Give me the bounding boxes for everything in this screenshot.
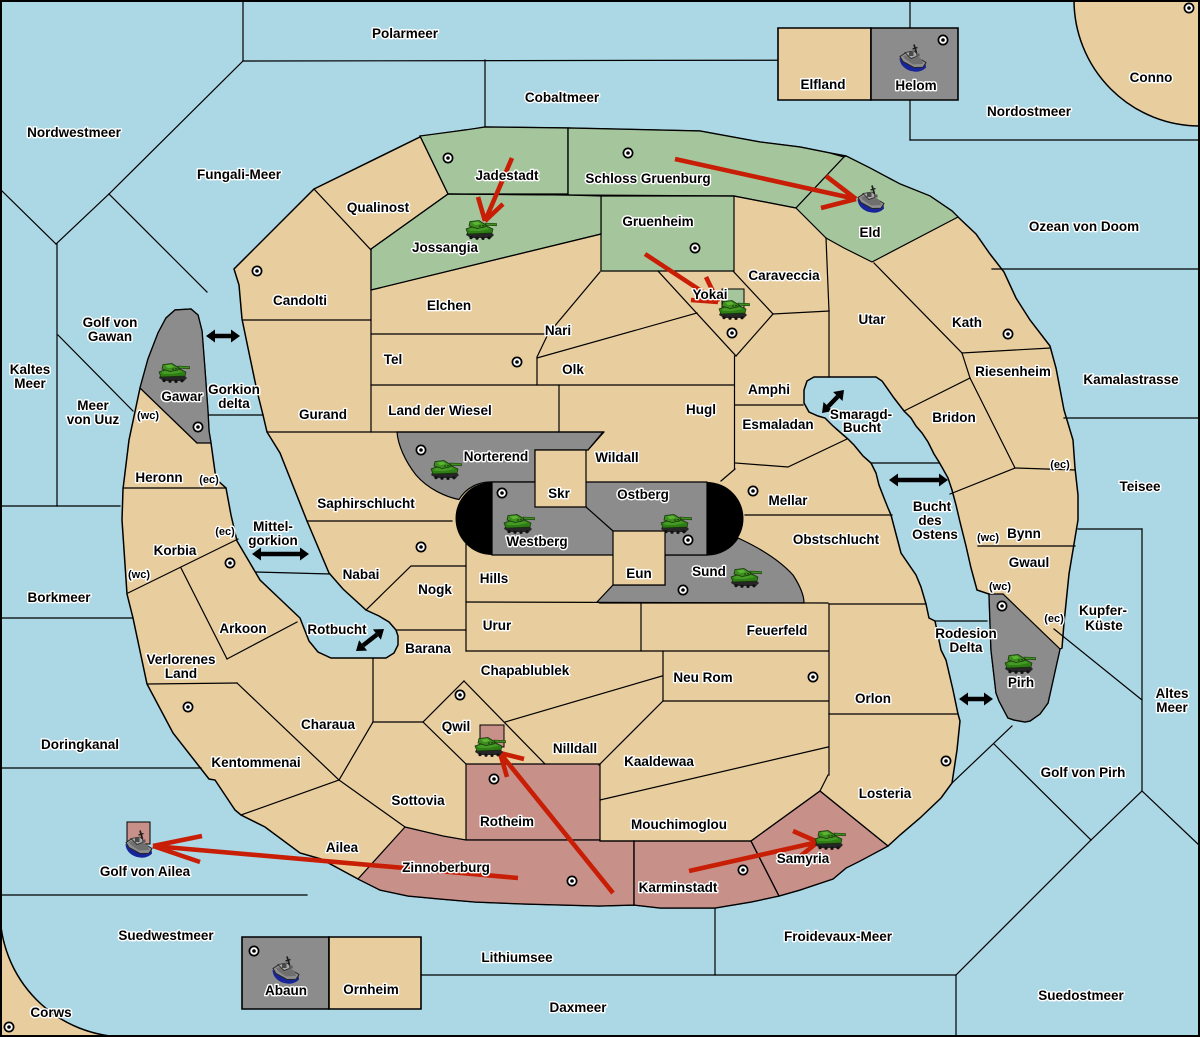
svg-text:Eun: Eun [626,566,652,581]
svg-text:Gwaul: Gwaul [1009,555,1050,570]
svg-text:Jossangia: Jossangia [412,240,479,255]
svg-text:Caraveccia: Caraveccia [748,268,820,283]
svg-text:Abaun: Abaun [265,983,307,998]
svg-text:von Uuz: von Uuz [67,412,120,427]
svg-text:Eld: Eld [859,225,880,240]
svg-text:Kaltes: Kaltes [10,362,51,377]
svg-text:Cobaltmeer: Cobaltmeer [525,90,600,105]
svg-text:Corws: Corws [30,1005,71,1020]
svg-text:Skr: Skr [548,486,571,501]
svg-text:Neu Rom: Neu Rom [673,670,732,685]
svg-text:Golf von Ailea: Golf von Ailea [100,864,191,879]
svg-text:Ozean von Doom: Ozean von Doom [1029,219,1139,234]
svg-text:Urur: Urur [483,618,512,633]
svg-text:Gruenheim: Gruenheim [622,214,693,229]
svg-text:Meer: Meer [14,376,46,391]
svg-text:Bynn: Bynn [1007,526,1041,541]
svg-text:Chapablublek: Chapablublek [481,663,570,678]
svg-text:Elfland: Elfland [800,77,845,92]
svg-text:Nari: Nari [545,323,571,338]
svg-text:Daxmeer: Daxmeer [549,1000,607,1015]
svg-text:Conno: Conno [1130,70,1173,85]
svg-text:Gawan: Gawan [88,329,132,344]
svg-text:Qwil: Qwil [442,719,471,734]
svg-text:Gurand: Gurand [299,407,347,422]
svg-text:Kath: Kath [952,315,982,330]
svg-text:Norterend: Norterend [464,449,529,464]
svg-text:Arkoon: Arkoon [219,621,266,636]
svg-text:Delta: Delta [949,640,983,655]
svg-text:Korbia: Korbia [154,543,197,558]
svg-text:Helom: Helom [895,78,936,93]
svg-text:(ec): (ec) [1050,459,1070,471]
svg-text:Kupfer-: Kupfer- [1079,603,1127,618]
svg-text:Küste: Küste [1085,618,1123,633]
svg-text:Land der Wiesel: Land der Wiesel [388,403,491,418]
svg-text:Nabai: Nabai [343,567,380,582]
svg-text:Elchen: Elchen [427,298,471,313]
svg-text:Bucht: Bucht [843,420,882,435]
svg-text:Feuerfeld: Feuerfeld [747,623,808,638]
svg-text:Schloss Gruenburg: Schloss Gruenburg [585,171,710,186]
svg-text:Olk: Olk [562,362,584,377]
svg-text:Obstschlucht: Obstschlucht [793,532,880,547]
svg-text:Kentommenai: Kentommenai [211,755,300,770]
svg-text:Orlon: Orlon [855,691,891,706]
svg-text:Altes: Altes [1155,686,1188,701]
svg-text:Candolti: Candolti [273,293,327,308]
svg-text:Teisee: Teisee [1119,479,1161,494]
svg-text:Polarmeer: Polarmeer [372,26,439,41]
svg-text:Meer: Meer [1156,700,1188,715]
svg-text:Suedwestmeer: Suedwestmeer [118,928,214,943]
svg-text:Rodesion: Rodesion [935,626,997,641]
svg-text:Mellar: Mellar [768,493,808,508]
svg-text:Saphirschlucht: Saphirschlucht [317,496,415,511]
svg-text:Jadestadt: Jadestadt [475,168,539,183]
svg-text:(ec): (ec) [199,474,219,486]
svg-text:(wc): (wc) [989,581,1011,593]
svg-text:Mittel-: Mittel- [253,519,293,534]
svg-text:Ailea: Ailea [326,840,359,855]
svg-text:Amphi: Amphi [748,382,790,397]
svg-text:Ornheim: Ornheim [343,982,399,997]
svg-text:delta: delta [218,396,250,411]
svg-text:Yokai: Yokai [692,287,727,302]
svg-text:Samyria: Samyria [777,851,830,866]
svg-text:Suedostmeer: Suedostmeer [1038,988,1124,1003]
svg-text:Riesenheim: Riesenheim [975,364,1051,379]
svg-text:Esmaladan: Esmaladan [742,417,813,432]
svg-text:Westberg: Westberg [506,534,567,549]
svg-text:Nogk: Nogk [418,582,452,597]
svg-text:(ec): (ec) [215,526,235,538]
svg-text:Verlorenes: Verlorenes [146,652,215,667]
svg-text:Lithiumsee: Lithiumsee [481,950,553,965]
svg-text:(wc): (wc) [977,532,999,544]
svg-text:Nordostmeer: Nordostmeer [987,104,1072,119]
svg-text:Fungali-Meer: Fungali-Meer [197,167,282,182]
svg-text:Karminstadt: Karminstadt [639,880,718,895]
svg-text:Sund: Sund [692,564,726,579]
svg-text:Nilldall: Nilldall [553,741,597,756]
svg-text:Mouchimoglou: Mouchimoglou [631,817,727,832]
svg-text:gorkion: gorkion [248,533,298,548]
svg-text:Golf von Pirh: Golf von Pirh [1041,765,1126,780]
svg-text:Ostens: Ostens [912,527,958,542]
svg-text:Charaua: Charaua [301,717,356,732]
svg-text:Doringkanal: Doringkanal [41,737,119,752]
svg-text:Borkmeer: Borkmeer [27,590,91,605]
svg-text:Meer: Meer [77,398,109,413]
svg-text:Barana: Barana [405,641,451,656]
svg-text:(ec): (ec) [1044,613,1064,625]
svg-text:Kamalastrasse: Kamalastrasse [1083,372,1179,387]
svg-text:Losteria: Losteria [859,786,912,801]
svg-text:Gorkion: Gorkion [208,382,260,397]
svg-text:Rotbucht: Rotbucht [307,622,367,637]
svg-text:Sottovia: Sottovia [391,793,445,808]
svg-text:Gawar: Gawar [161,389,203,404]
svg-text:Rotheim: Rotheim [480,814,534,829]
svg-text:(wc): (wc) [128,569,150,581]
svg-text:Hugl: Hugl [686,402,716,417]
svg-text:Bucht: Bucht [913,499,952,514]
svg-text:Bridon: Bridon [932,410,976,425]
svg-text:Tel: Tel [384,352,403,367]
svg-text:Ostberg: Ostberg [617,487,669,502]
svg-text:Land: Land [165,666,197,681]
svg-text:Nordwestmeer: Nordwestmeer [27,125,122,140]
svg-text:Utar: Utar [858,312,886,327]
svg-text:(wc): (wc) [137,410,159,422]
svg-text:Kaaldewaa: Kaaldewaa [624,754,694,769]
svg-text:Zinnoberburg: Zinnoberburg [402,860,490,875]
svg-text:Wildall: Wildall [595,450,638,465]
svg-text:Hills: Hills [480,571,509,586]
svg-text:des: des [918,513,941,528]
svg-text:Golf von: Golf von [83,315,138,330]
svg-text:Qualinost: Qualinost [347,200,410,215]
svg-text:Froidevaux-Meer: Froidevaux-Meer [784,929,893,944]
svg-text:Heronn: Heronn [135,470,182,485]
svg-text:Pirh: Pirh [1008,675,1034,690]
